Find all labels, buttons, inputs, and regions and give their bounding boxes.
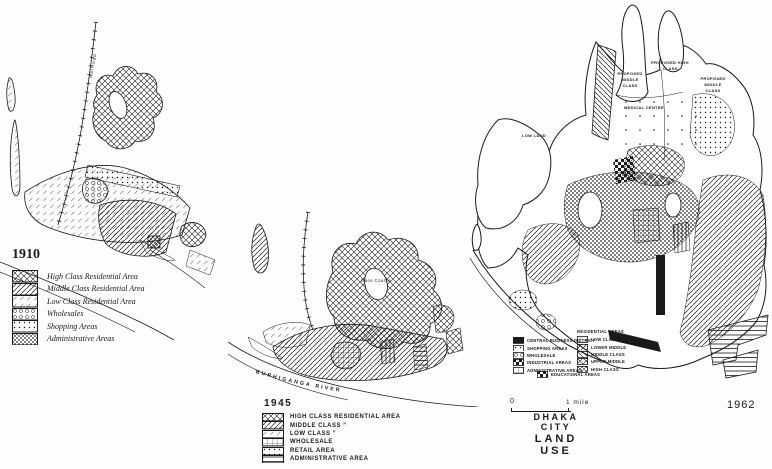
legend-swatch-icon xyxy=(577,336,588,343)
legend-item-label: ADMINISTRATIVE AREA xyxy=(290,456,369,462)
legend-item: Wholesales xyxy=(12,308,145,321)
scale-zero-label: 0 xyxy=(510,398,514,405)
figure-title-line1: DHAKA CITY xyxy=(516,412,596,432)
legend-item: MIDDLE CLASS xyxy=(577,351,626,358)
legend-swatch-icon xyxy=(513,367,524,374)
legend-1962-residential-header: RESIDENTIAL AREAS xyxy=(577,329,624,334)
legend-swatch-icon xyxy=(12,270,38,283)
figure-title-line2: LAND USE xyxy=(516,433,596,457)
legend-swatch-icon xyxy=(577,358,588,365)
label-jail: Jail xyxy=(360,337,376,343)
legend-swatch-icon xyxy=(537,371,548,378)
legend-item-label: Middle Class Residential Area xyxy=(47,284,145,293)
label-proposed-middle-class-right: PROPOSED MIDDLE CLASS xyxy=(698,76,728,94)
legend-item-label: Wholesales xyxy=(47,309,83,318)
legend-swatch-icon xyxy=(262,447,284,455)
legend-swatch-icon xyxy=(262,430,284,438)
label-medical-centre: MEDICAL CENTRE xyxy=(622,105,666,111)
legend-swatch-icon xyxy=(12,295,38,308)
legend-item-label: MIDDLE CLASS xyxy=(591,352,625,357)
legend-1962-right: LOW CLASS LOWER MIDDLE MIDDLE CLASS xyxy=(577,336,626,373)
legend-swatch-icon xyxy=(262,413,284,421)
legend-item: EDUCATIONAL AREAS xyxy=(537,371,600,378)
map-1962-year-label: 1962 xyxy=(727,399,755,411)
legend-item-label: Low Class Residential Area xyxy=(47,297,136,306)
legend-item: High Class Residential Area xyxy=(12,270,145,283)
legend-swatch-icon xyxy=(12,283,38,296)
legend-item-label: RETAIL AREA xyxy=(290,448,335,454)
legend-swatch-icon xyxy=(12,320,38,333)
legend-swatch-icon xyxy=(513,359,524,366)
legend-swatch-icon xyxy=(12,333,38,346)
legend-item: MIDDLE CLASS ” xyxy=(262,421,401,429)
legend-item-label: LOW CLASS ” xyxy=(290,431,336,437)
legend-item: LOW CLASS ” xyxy=(262,430,401,438)
legend-swatch-icon xyxy=(577,344,588,351)
legend-item-label: UPPER MIDDLE xyxy=(591,359,625,364)
legend-1910: High Class Residential Area Middle Class… xyxy=(12,270,145,345)
legend-swatch-icon xyxy=(513,352,524,359)
legend-item-label: MIDDLE CLASS ” xyxy=(290,423,347,429)
legend-item-label: EDUCATIONAL AREAS xyxy=(551,372,600,377)
legend-item: Administrative Areas xyxy=(12,333,145,346)
legend-item: WHOLESALE xyxy=(262,438,401,446)
legend-swatch-icon xyxy=(577,351,588,358)
legend-item: ADMINISTRATIVE AREA xyxy=(262,455,401,463)
figure-title: DHAKA CITY LAND USE xyxy=(516,412,596,457)
legend-item-label: High Class Residential Area xyxy=(47,272,138,281)
legend-item-label: LOW CLASS xyxy=(591,337,618,342)
legend-item: Low Class Residential Area xyxy=(12,295,145,308)
legend-item: LOWER MIDDLE xyxy=(577,343,626,350)
map-1945: BURHIGANGA RIVER xyxy=(228,192,483,407)
legend-1962-bottom: EDUCATIONAL AREAS xyxy=(537,371,600,378)
legend-item: UPPER MIDDLE xyxy=(577,358,626,365)
legend-item-label: WHOLESALE xyxy=(290,439,333,445)
label-low-land: LOW LAND xyxy=(518,133,550,139)
legend-item: Middle Class Residential Area xyxy=(12,283,145,296)
label-proposed-middle-class-left: PROPOSED MIDDLE CLASS xyxy=(615,71,645,89)
legend-swatch-icon xyxy=(12,308,38,321)
railroad-label: Railroad xyxy=(88,53,97,78)
legend-swatch-icon xyxy=(513,345,524,352)
legend-item: RETAIL AREA xyxy=(262,447,401,455)
figure-dhaka-land-use: Railroad xyxy=(0,0,772,469)
legend-item-label: Administrative Areas xyxy=(47,334,114,343)
legend-1945: HIGH CLASS RESIDENTIAL AREA MIDDLE CLASS… xyxy=(262,413,401,463)
legend-swatch-icon xyxy=(513,337,524,344)
legend-item-label: HIGH CLASS RESIDENTIAL AREA xyxy=(290,414,401,420)
label-proposed-high-class: PROPOSED HIGH CLASS xyxy=(650,60,690,72)
legend-swatch-icon xyxy=(262,455,284,463)
legend-item: LOW CLASS xyxy=(577,336,626,343)
legend-item-label: Shopping Areas xyxy=(47,322,97,331)
legend-item-label: INDUSTRIAL AREAS xyxy=(527,360,571,365)
legend-item: Shopping Areas xyxy=(12,320,145,333)
legend-item-label: SHOPPING AREAS xyxy=(527,346,568,351)
map-1910-year-label: 1910 xyxy=(12,247,40,263)
legend-swatch-icon xyxy=(262,421,284,429)
legend-item-label: WHOLESALE xyxy=(527,353,556,358)
legend-item-label: LOWER MIDDLE xyxy=(591,345,626,350)
legend-swatch-icon xyxy=(262,438,284,446)
scale-mile-label: 1 mile xyxy=(566,399,589,406)
label-race-course: Race Course xyxy=(360,278,392,285)
scale-bar: 0 1 mile xyxy=(509,398,604,412)
map-1945-year-label: 1945 xyxy=(264,398,292,409)
legend-item: HIGH CLASS RESIDENTIAL AREA xyxy=(262,413,401,421)
